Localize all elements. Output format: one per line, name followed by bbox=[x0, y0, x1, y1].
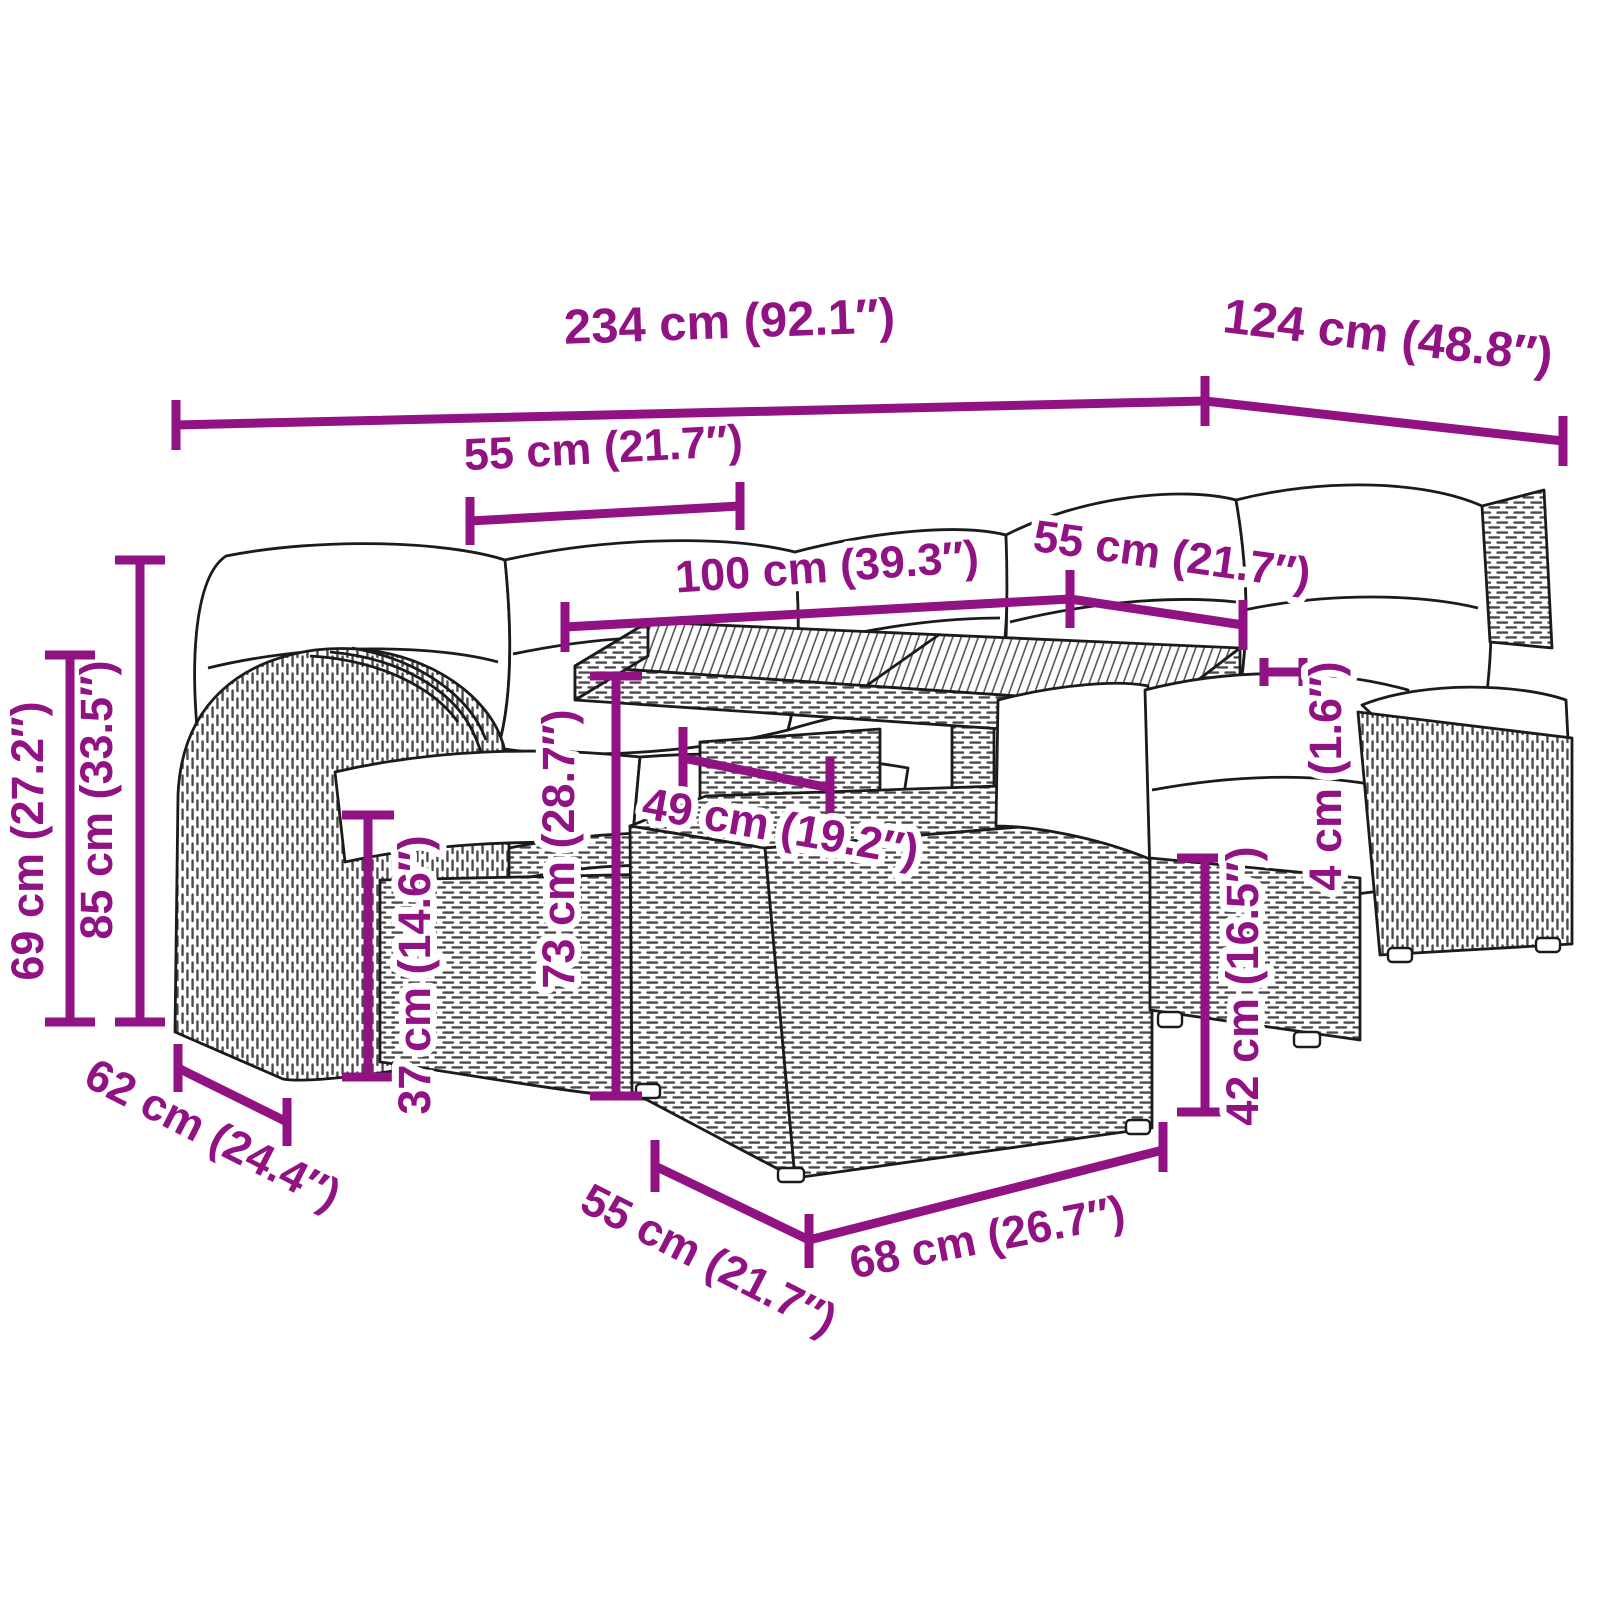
sofa-right-armrest bbox=[1358, 687, 1572, 962]
dimension-label: 69 cm (27.2″) bbox=[2, 701, 53, 980]
dimension-label: 4 cm (1.6″) bbox=[1300, 661, 1351, 890]
dimension-label: 55 cm (21.7″) bbox=[573, 1173, 845, 1345]
dimension-label: 68 cm (26.7″) bbox=[845, 1185, 1129, 1288]
dimension-label: 234 cm (92.1″) bbox=[563, 289, 896, 355]
dimension-label: 37 cm (14.6″) bbox=[389, 835, 440, 1114]
dimension-seat-width-left: 55 cm (21.7″) bbox=[462, 415, 744, 545]
dimension-right-wing-depth: 124 cm (48.8″) bbox=[1205, 289, 1563, 466]
dimension-backrest-height: 85 cm (33.5″) bbox=[71, 560, 165, 1022]
dimension-label: 85 cm (33.5″) bbox=[71, 660, 122, 939]
dimension-label: 42 cm (16.5″) bbox=[1217, 846, 1268, 1125]
dimension-diagram: 234 cm (92.1″) 124 cm (48.8″) 55 cm (21.… bbox=[0, 0, 1600, 1600]
diagram-canvas: 234 cm (92.1″) 124 cm (48.8″) 55 cm (21.… bbox=[0, 0, 1600, 1600]
dimension-label: 124 cm (48.8″) bbox=[1220, 289, 1555, 383]
dimension-label: 55 cm (21.7″) bbox=[462, 415, 744, 481]
dimension-label: 73 cm (28.7″) bbox=[533, 709, 584, 988]
